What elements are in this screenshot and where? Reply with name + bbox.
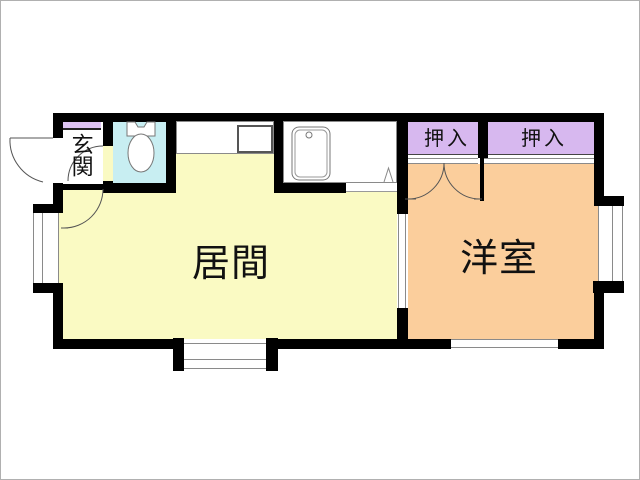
living-room-label: 居間 — [192, 245, 270, 283]
plan-symbols-layer — [1, 1, 640, 480]
genkan-door-icon — [61, 189, 103, 228]
sink-icon — [292, 127, 330, 180]
entrance-door-icon — [10, 138, 53, 182]
genkan-label: 玄関 — [68, 133, 93, 177]
closet1-label: 押入 — [424, 129, 470, 149]
western-room-label: 洋室 — [460, 240, 538, 278]
floor-plan: 玄関 居間 洋室 押入 押入 — [0, 0, 640, 480]
counter-triangle-icon — [384, 168, 393, 182]
toilet-icon — [127, 122, 155, 172]
closet2-label: 押入 — [521, 129, 567, 149]
closet-double-door-icon — [405, 163, 482, 199]
